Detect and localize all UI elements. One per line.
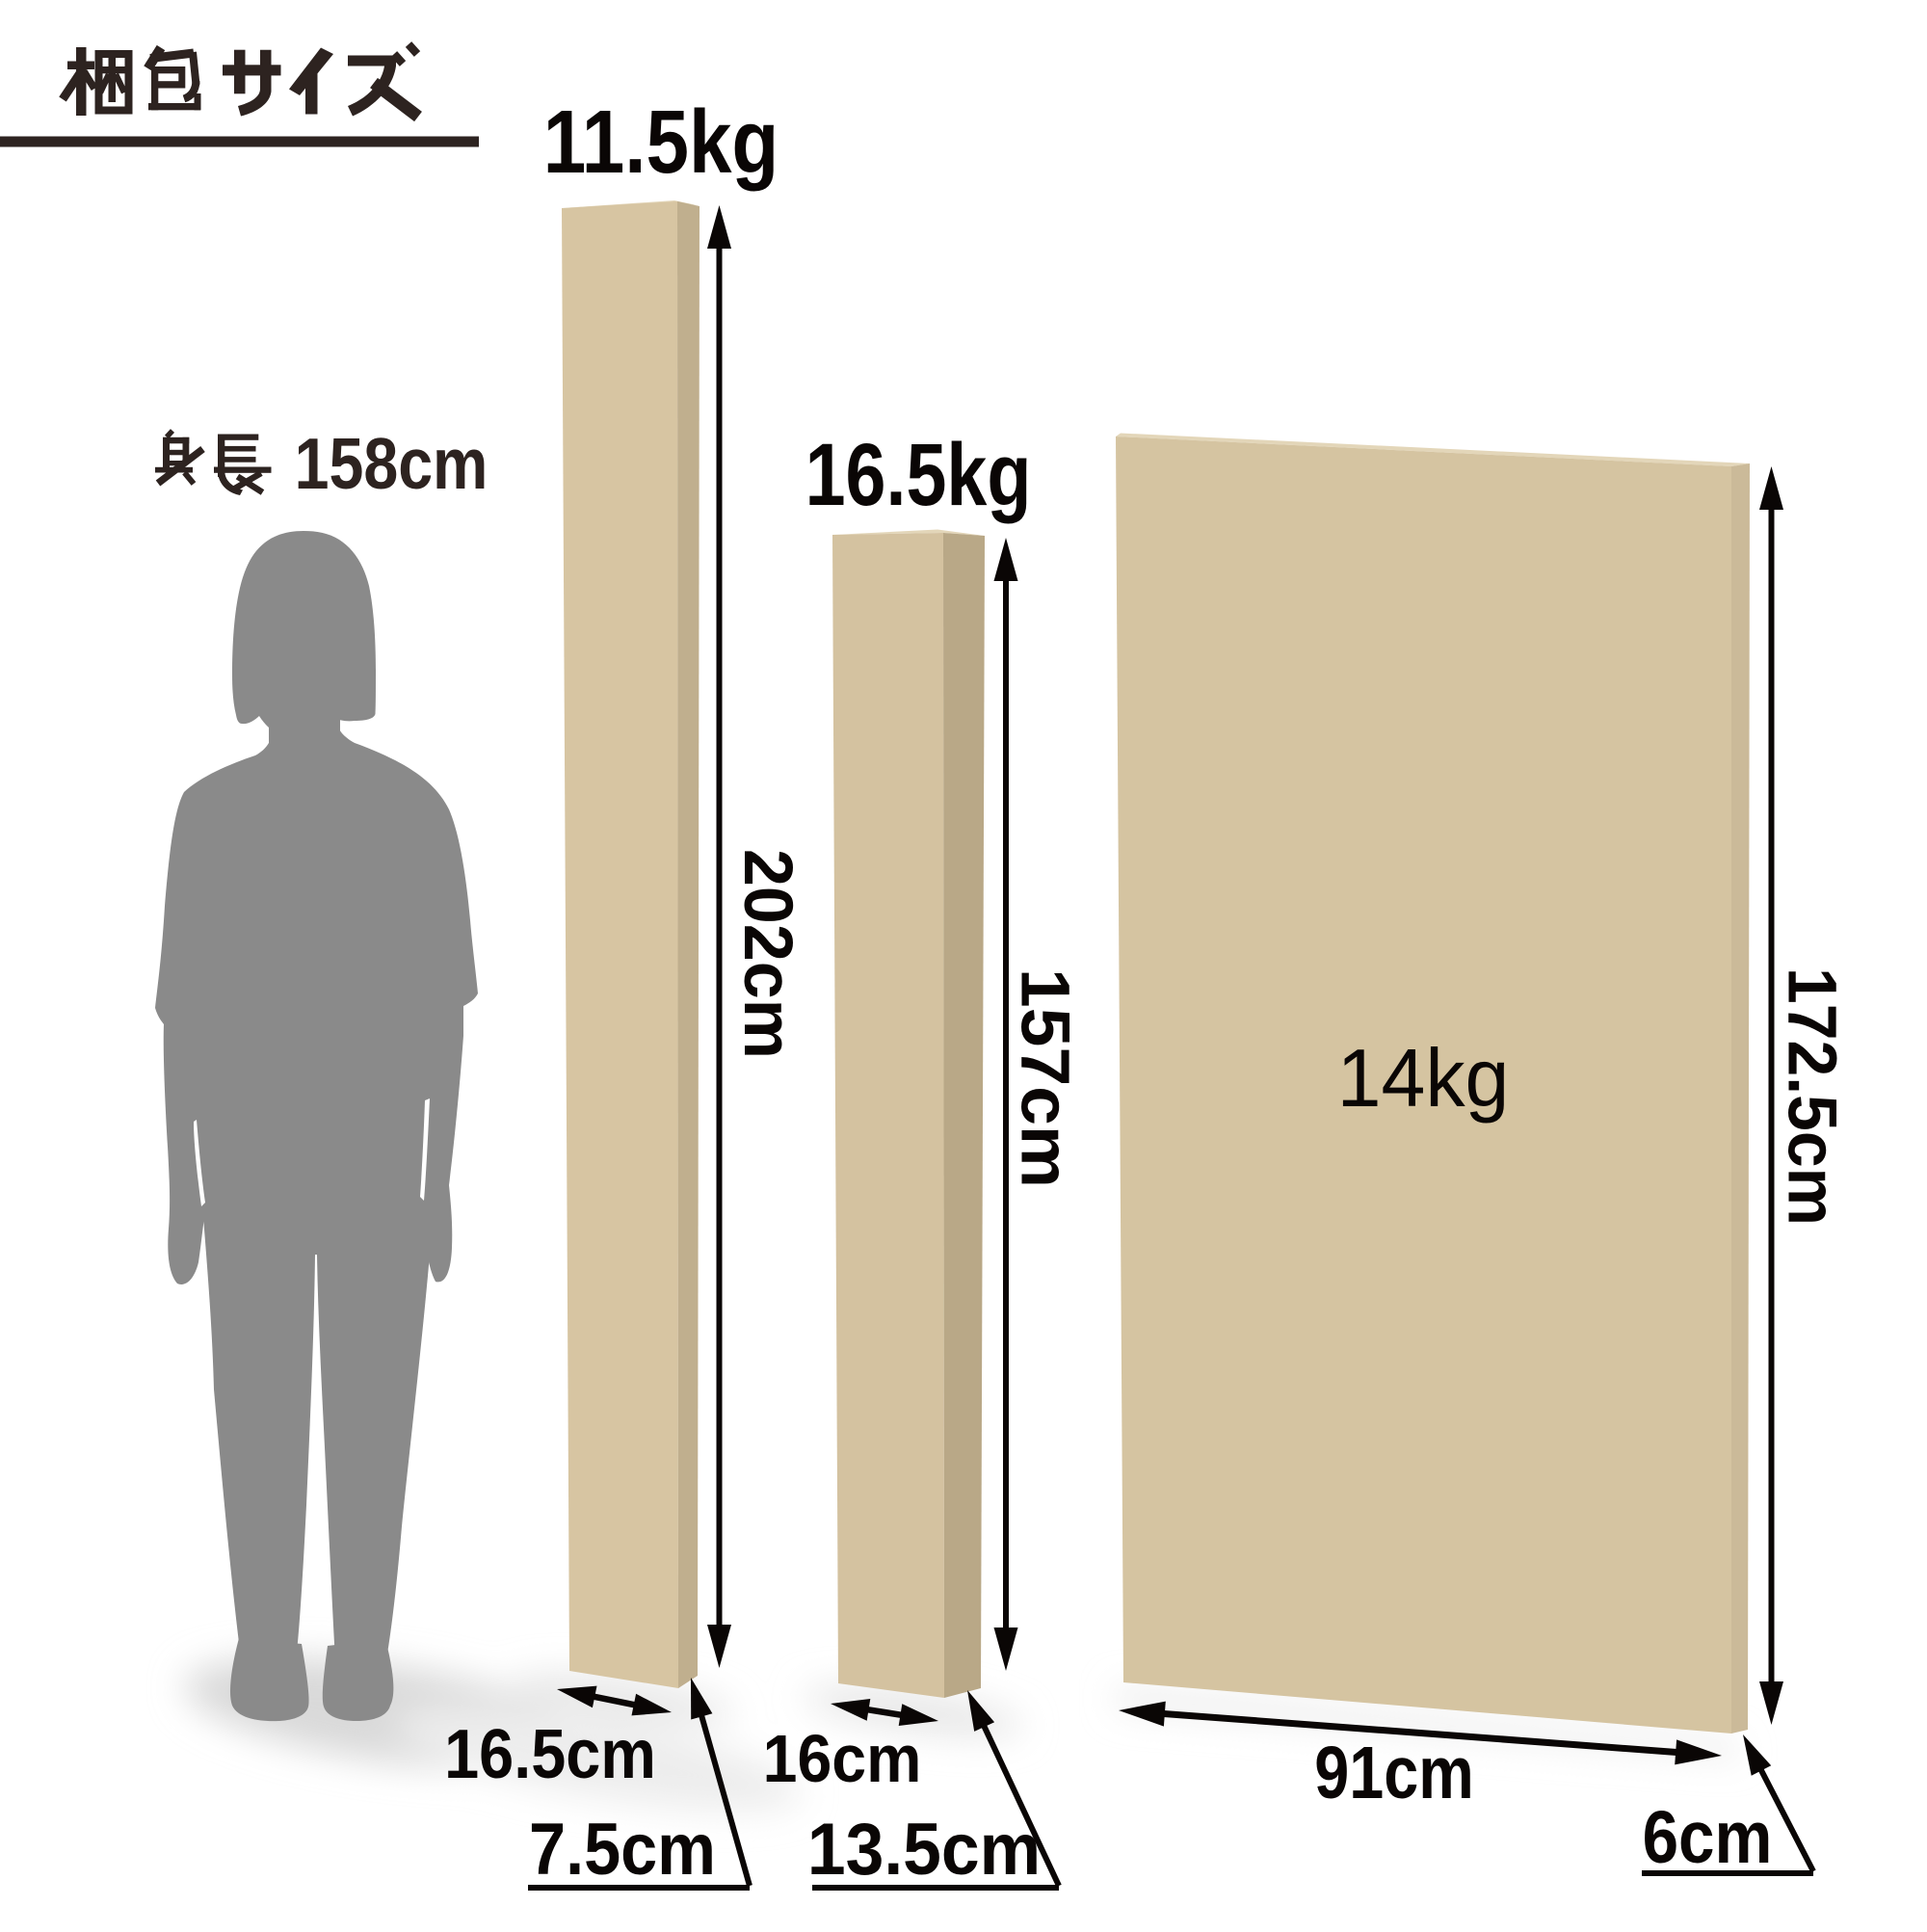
- svg-text:16cm: 16cm: [763, 1722, 922, 1797]
- svg-text:16.5cm: 16.5cm: [444, 1715, 656, 1793]
- svg-text:157cm: 157cm: [1007, 968, 1083, 1188]
- svg-text:158cm: 158cm: [295, 423, 488, 504]
- svg-text:11.5kg: 11.5kg: [543, 92, 779, 192]
- svg-text:202cm: 202cm: [729, 849, 805, 1059]
- svg-text:7.5cm: 7.5cm: [529, 1810, 716, 1891]
- svg-text:6cm: 6cm: [1643, 1797, 1773, 1879]
- svg-text:14kg: 14kg: [1337, 1032, 1510, 1124]
- svg-text:13.5cm: 13.5cm: [807, 1808, 1041, 1891]
- svg-text:172.5cm: 172.5cm: [1774, 967, 1850, 1226]
- svg-text:16.5kg: 16.5kg: [805, 425, 1032, 524]
- svg-text:91cm: 91cm: [1314, 1733, 1473, 1815]
